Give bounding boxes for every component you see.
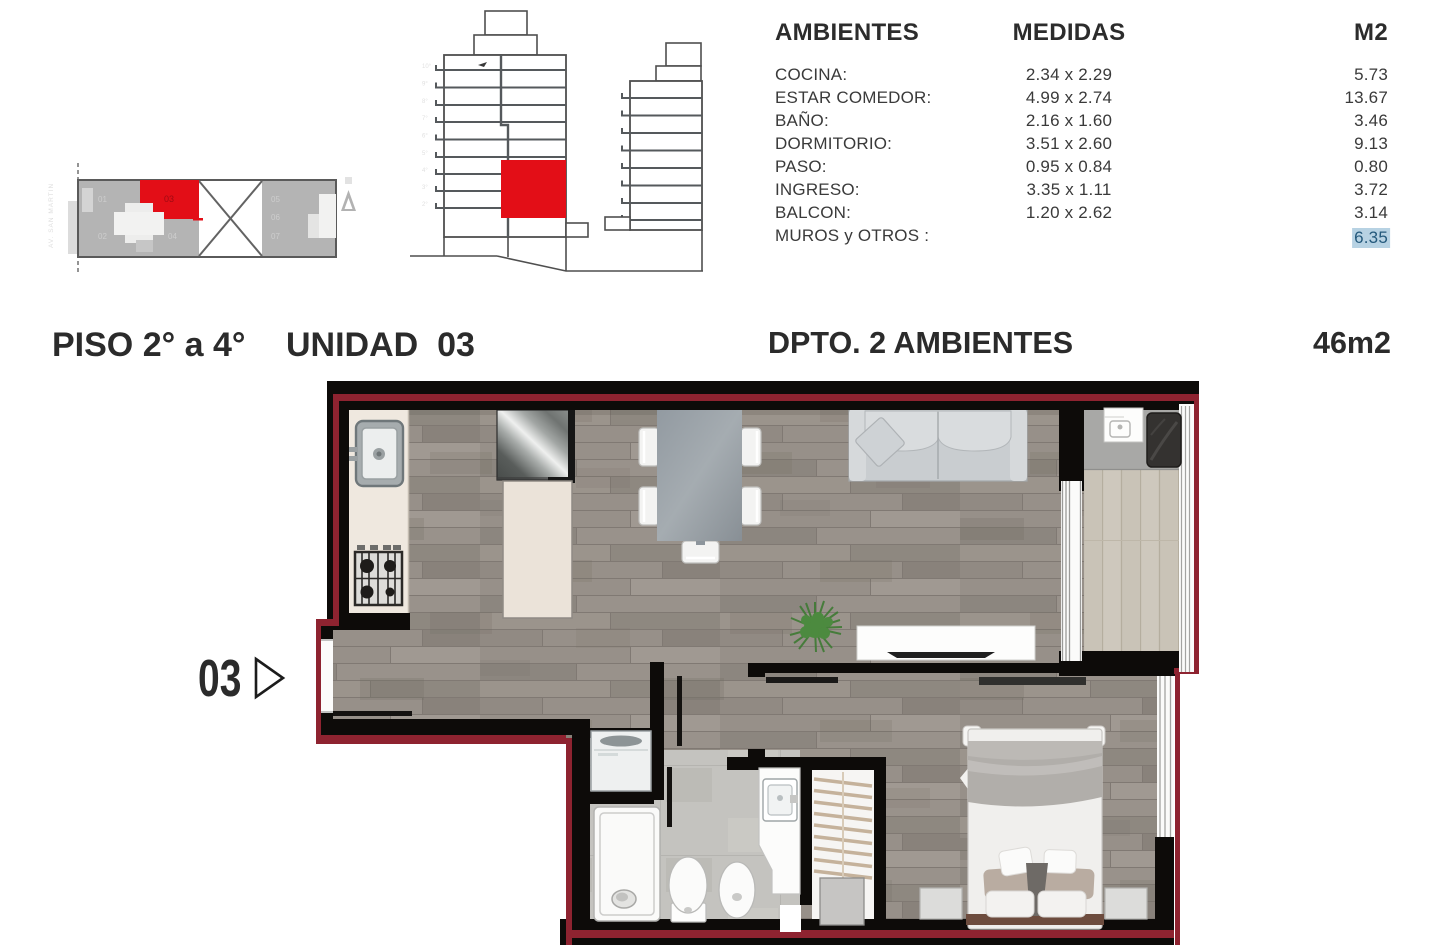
svg-text:03: 03 (164, 194, 174, 204)
svg-text:9°: 9° (422, 82, 428, 88)
svg-text:02: 02 (98, 232, 107, 241)
svg-text:07: 07 (271, 232, 280, 241)
svg-text:6°: 6° (422, 134, 428, 140)
svg-text:05: 05 (271, 195, 280, 204)
svg-text:04: 04 (168, 232, 177, 241)
svg-text:3°: 3° (422, 185, 428, 191)
svg-text:8°: 8° (422, 99, 428, 105)
svg-text:10°: 10° (422, 64, 432, 70)
svg-text:4°: 4° (422, 168, 428, 174)
svg-text:06: 06 (271, 213, 280, 222)
svg-text:2°: 2° (422, 202, 428, 208)
svg-text:01: 01 (98, 195, 107, 204)
svg-text:5°: 5° (422, 151, 428, 157)
svg-text:7°: 7° (422, 116, 428, 122)
